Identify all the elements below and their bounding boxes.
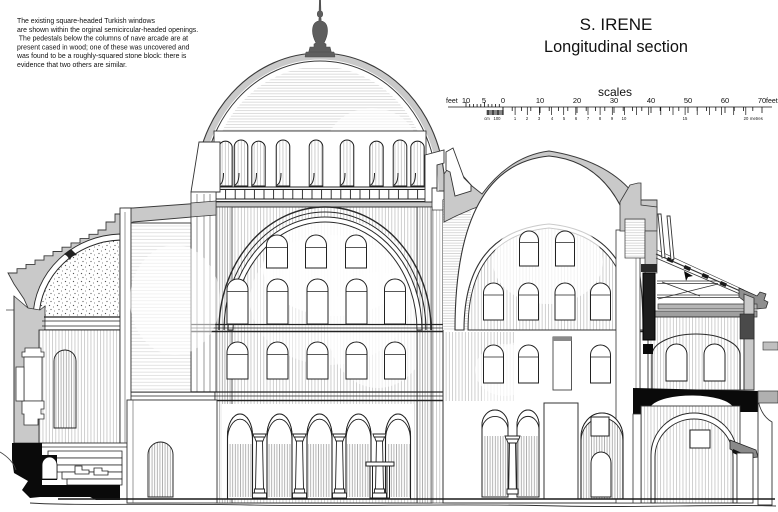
svg-text:10: 10 bbox=[536, 96, 544, 105]
svg-text:20: 20 bbox=[744, 116, 749, 121]
svg-text:10: 10 bbox=[462, 96, 470, 105]
svg-text:15: 15 bbox=[683, 116, 688, 121]
svg-text:100: 100 bbox=[494, 116, 502, 121]
svg-text:5: 5 bbox=[482, 96, 486, 105]
svg-text:20: 20 bbox=[573, 96, 581, 105]
svg-text:S. IRENE: S. IRENE bbox=[580, 15, 653, 34]
svg-text:70: 70 bbox=[758, 96, 766, 105]
svg-text:cm: cm bbox=[484, 116, 490, 121]
svg-text:40: 40 bbox=[647, 96, 655, 105]
svg-text:30: 30 bbox=[610, 96, 618, 105]
svg-text:Longitudinal section: Longitudinal section bbox=[544, 38, 688, 56]
svg-text:feet: feet bbox=[446, 98, 458, 105]
svg-text:10: 10 bbox=[622, 116, 627, 121]
svg-text:metres: metres bbox=[750, 116, 763, 121]
svg-text:0: 0 bbox=[501, 96, 505, 105]
svg-text:60: 60 bbox=[721, 96, 729, 105]
svg-text:feet: feet bbox=[766, 98, 778, 105]
svg-text:50: 50 bbox=[684, 96, 692, 105]
